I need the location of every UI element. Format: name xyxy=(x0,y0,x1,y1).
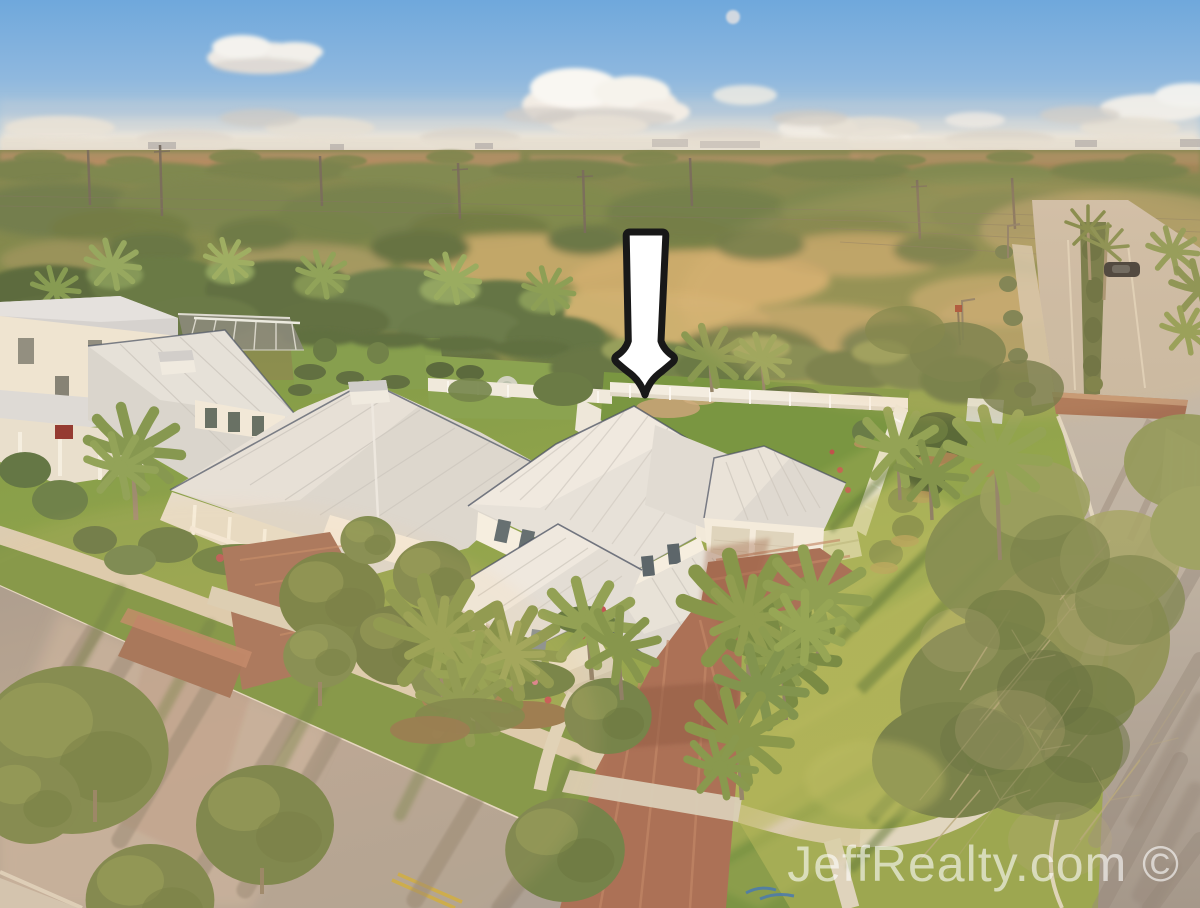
svg-text:JeffRealty.com ©: JeffRealty.com © xyxy=(787,836,1180,892)
